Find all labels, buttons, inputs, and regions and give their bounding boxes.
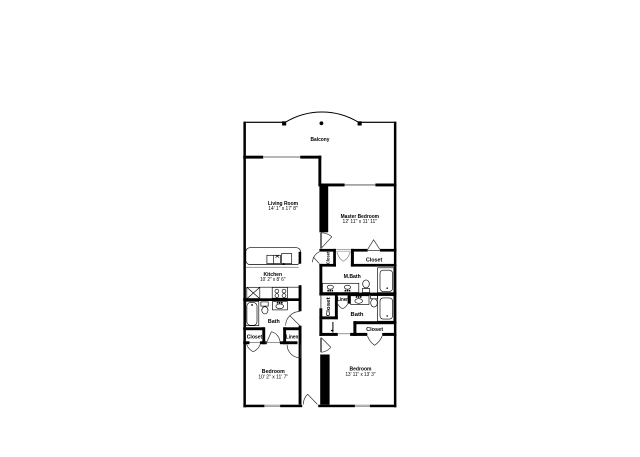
svg-text:Bath: Bath (351, 312, 365, 318)
svg-text:10' 2" x 8' 6": 10' 2" x 8' 6" (260, 277, 286, 283)
svg-text:Bath: Bath (268, 319, 281, 325)
svg-text:Closet: Closet (326, 297, 332, 316)
svg-text:Closet: Closet (247, 334, 263, 340)
svg-text:14' 1" x 17' 8": 14' 1" x 17' 8" (268, 206, 298, 212)
svg-text:M.Bath: M.Bath (344, 274, 362, 280)
svg-text:13' 11" x 13' 3": 13' 11" x 13' 3" (346, 372, 376, 378)
svg-text:Balcony: Balcony (311, 137, 331, 143)
svg-text:10' 2" x 11' 7": 10' 2" x 11' 7" (258, 374, 288, 380)
svg-text:Closet: Closet (366, 257, 383, 263)
svg-text:Closet: Closet (366, 327, 383, 333)
svg-text:Linen: Linen (337, 297, 349, 303)
svg-text:Linen: Linen (286, 334, 298, 340)
svg-text:12' 11" x 11' 11": 12' 11" x 11' 11" (343, 219, 378, 225)
svg-text:Closet: Closet (325, 251, 330, 264)
